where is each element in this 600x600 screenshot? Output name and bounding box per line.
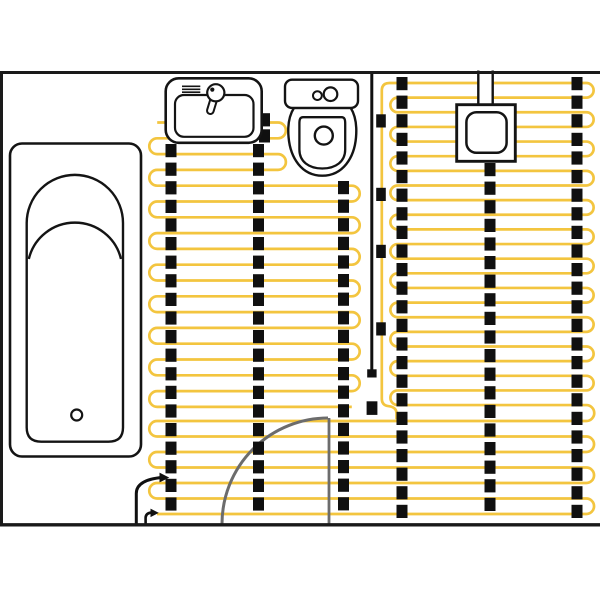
fixture-toilet — [285, 80, 358, 176]
floor-plan-svg — [0, 0, 600, 600]
fixture-bathtub — [10, 144, 141, 457]
bathroom-floor-plan — [0, 0, 600, 600]
fixture-sink — [166, 78, 262, 143]
door-swing — [222, 418, 329, 525]
